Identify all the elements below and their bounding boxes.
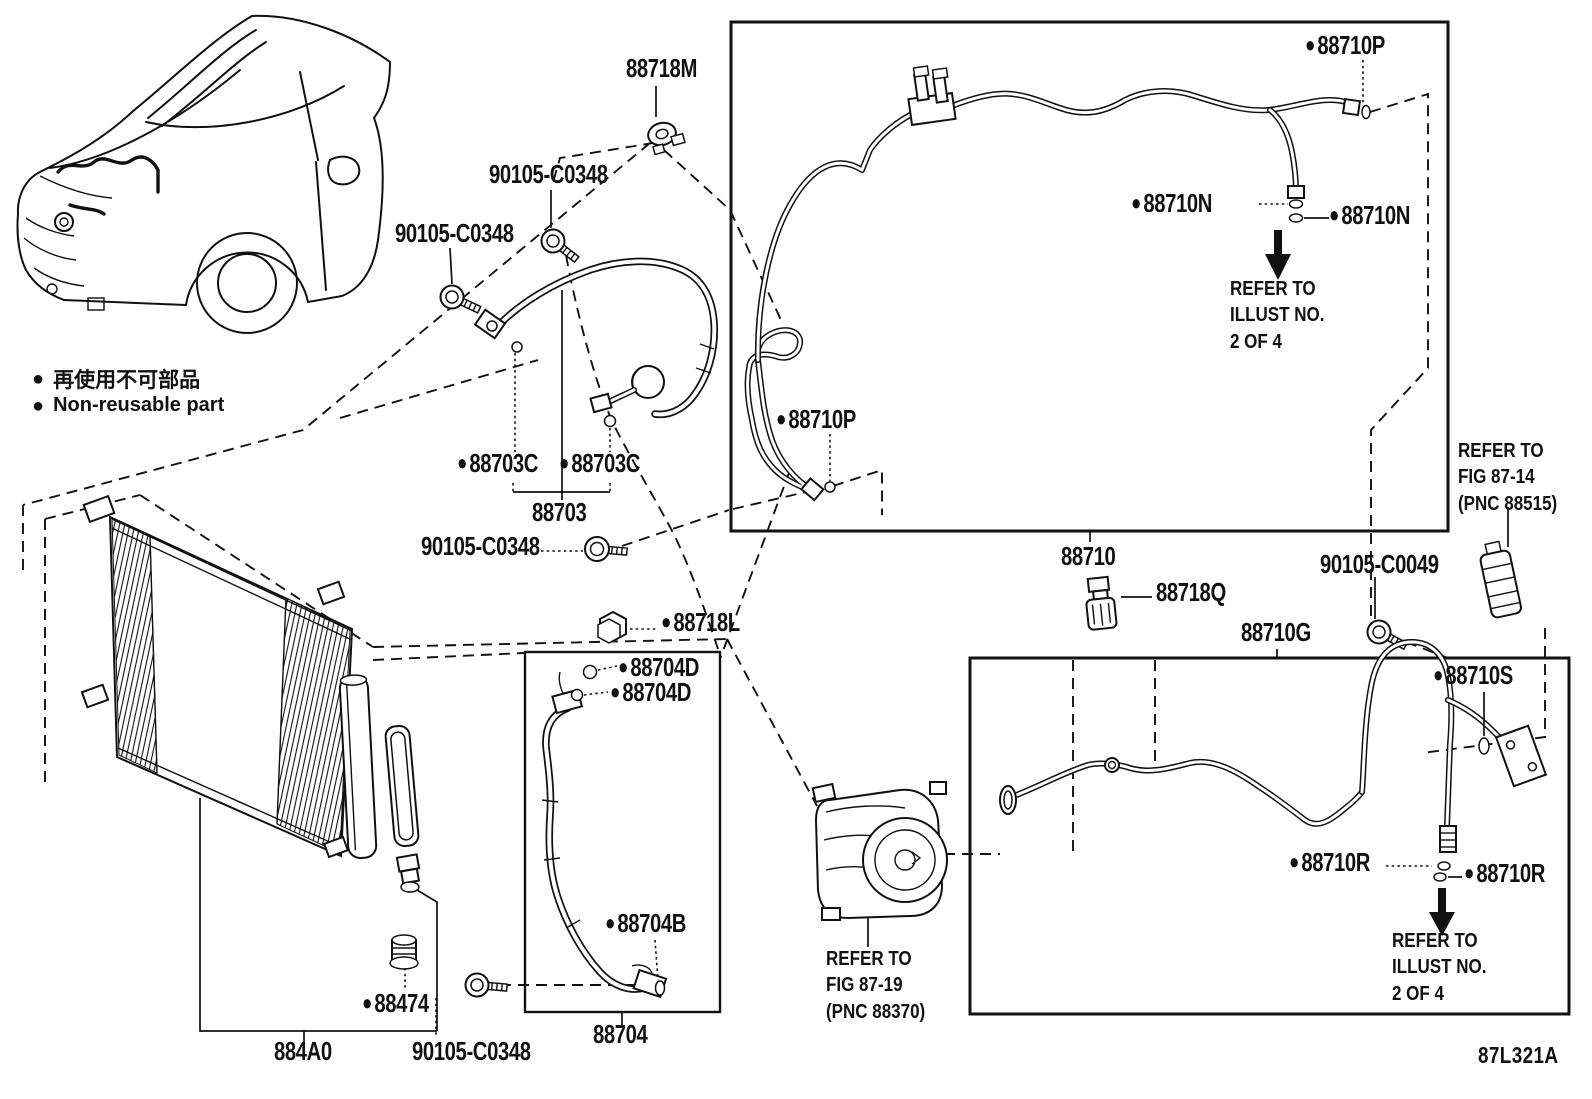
non-reusable-icon: ● (457, 452, 467, 474)
part-label-90105-C0348-bottom: 90105-C0348 (412, 1038, 531, 1065)
part-label-884A0: 884A0 (274, 1038, 332, 1065)
part-label-88710G: 88710G (1241, 619, 1311, 646)
non-reusable-icon: ● (362, 992, 372, 1014)
non-reusable-icon: ● (776, 408, 786, 430)
part-label-88710R-2: ●88710R (1464, 860, 1545, 887)
service-ports (908, 66, 955, 125)
condenser-seal (385, 725, 419, 847)
clip-88718Q-part (1084, 576, 1117, 630)
compressor-drawing (813, 782, 947, 920)
non-reusable-icon: ● (1329, 204, 1339, 226)
part-label-88710N-1: ●88710N (1131, 190, 1212, 217)
bolt-90105-C0348-mid (584, 536, 628, 564)
part-label-90105-C0348-left: 90105-C0348 (395, 220, 514, 247)
non-reusable-icon: ● (1433, 664, 1443, 686)
bolt-90105-C0348-left (437, 282, 484, 320)
legend-non-reusable-en: ● Non-reusable part (32, 394, 224, 417)
bolt-90105-C0348-bottom (465, 973, 508, 1000)
note-refer-illust-top: REFER TO ILLUST NO. 2 OF 4 (1230, 276, 1324, 355)
part-label-88703: 88703 (532, 499, 586, 526)
receiver-drier (339, 674, 377, 858)
non-reusable-icon: ● (661, 611, 671, 633)
note-refer-fig-87-19: REFER TO FIG 87-19 (PNC 88370) (826, 946, 925, 1025)
non-reusable-icon: ● (610, 681, 620, 703)
part-label-90105-C0348-mid: 90105-C0348 (421, 533, 540, 560)
part-label-88704: 88704 (593, 1021, 647, 1048)
down-arrow-icon (1265, 230, 1291, 280)
non-reusable-icon: ● (618, 656, 628, 678)
part-label-88710R-1: ●88710R (1289, 849, 1370, 876)
parts-diagram-page: ● 再使用不可部品 ● Non-reusable part 88718M 901… (0, 0, 1592, 1099)
car-sketch (17, 16, 390, 333)
non-reusable-icon: ● (1305, 34, 1315, 56)
non-reusable-icon: ● (1289, 851, 1299, 873)
non-reusable-icon: ● (1464, 862, 1474, 884)
part-label-88718Q: 88718Q (1156, 579, 1226, 606)
note-refer-illust-bottom: REFER TO ILLUST NO. 2 OF 4 (1392, 928, 1486, 1007)
note-refer-fig-87-14: REFER TO FIG 87-14 (PNC 88515) (1458, 438, 1557, 517)
condenser-drawing (82, 496, 437, 1044)
non-reusable-icon: ● (559, 452, 569, 474)
non-reusable-icon: ● (1131, 192, 1141, 214)
drawing-code: 87L321A (1478, 1042, 1558, 1069)
part-label-88718L: ●88718L (661, 609, 740, 636)
legend-en-text: Non-reusable part (53, 394, 224, 417)
hose-88704-drawing (542, 666, 666, 997)
part-label-88710: 88710 (1061, 543, 1115, 570)
part-label-90105-C0348-top: 90105-C0348 (489, 161, 608, 188)
part-label-88704B: ●88704B (605, 910, 686, 937)
hose-88703-drawing (475, 261, 714, 426)
part-label-88710N-2: ●88710N (1329, 202, 1410, 229)
part-label-88710P-low: ●88710P (776, 406, 856, 433)
non-reusable-icon: ● (32, 396, 44, 416)
non-reusable-icon: ● (605, 912, 615, 934)
part-label-88474: ●88474 (362, 990, 429, 1017)
part-label-88703C-2: ●88703C (559, 450, 640, 477)
cap-88474-part (390, 935, 418, 969)
part-label-88704D-2: ●88704D (610, 679, 691, 706)
part-label-88710P-top: ●88710P (1305, 32, 1385, 59)
nut-88718L-part (598, 612, 626, 643)
valve-part (397, 854, 419, 892)
legend-jp-text: 再使用不可部品 (53, 364, 200, 394)
part-label-88703C-1: ●88703C (457, 450, 538, 477)
bolt-90105-C0348-top (537, 225, 584, 269)
legend-non-reusable-jp: ● 再使用不可部品 (32, 364, 200, 394)
drier-element-part (1477, 540, 1522, 619)
clamp-88718M-part (646, 118, 686, 155)
part-label-88710S: ●88710S (1433, 662, 1513, 689)
non-reusable-icon: ● (32, 369, 44, 389)
part-label-90105-C0049: 90105-C0049 (1320, 551, 1439, 578)
part-label-88718M: 88718M (626, 55, 697, 82)
